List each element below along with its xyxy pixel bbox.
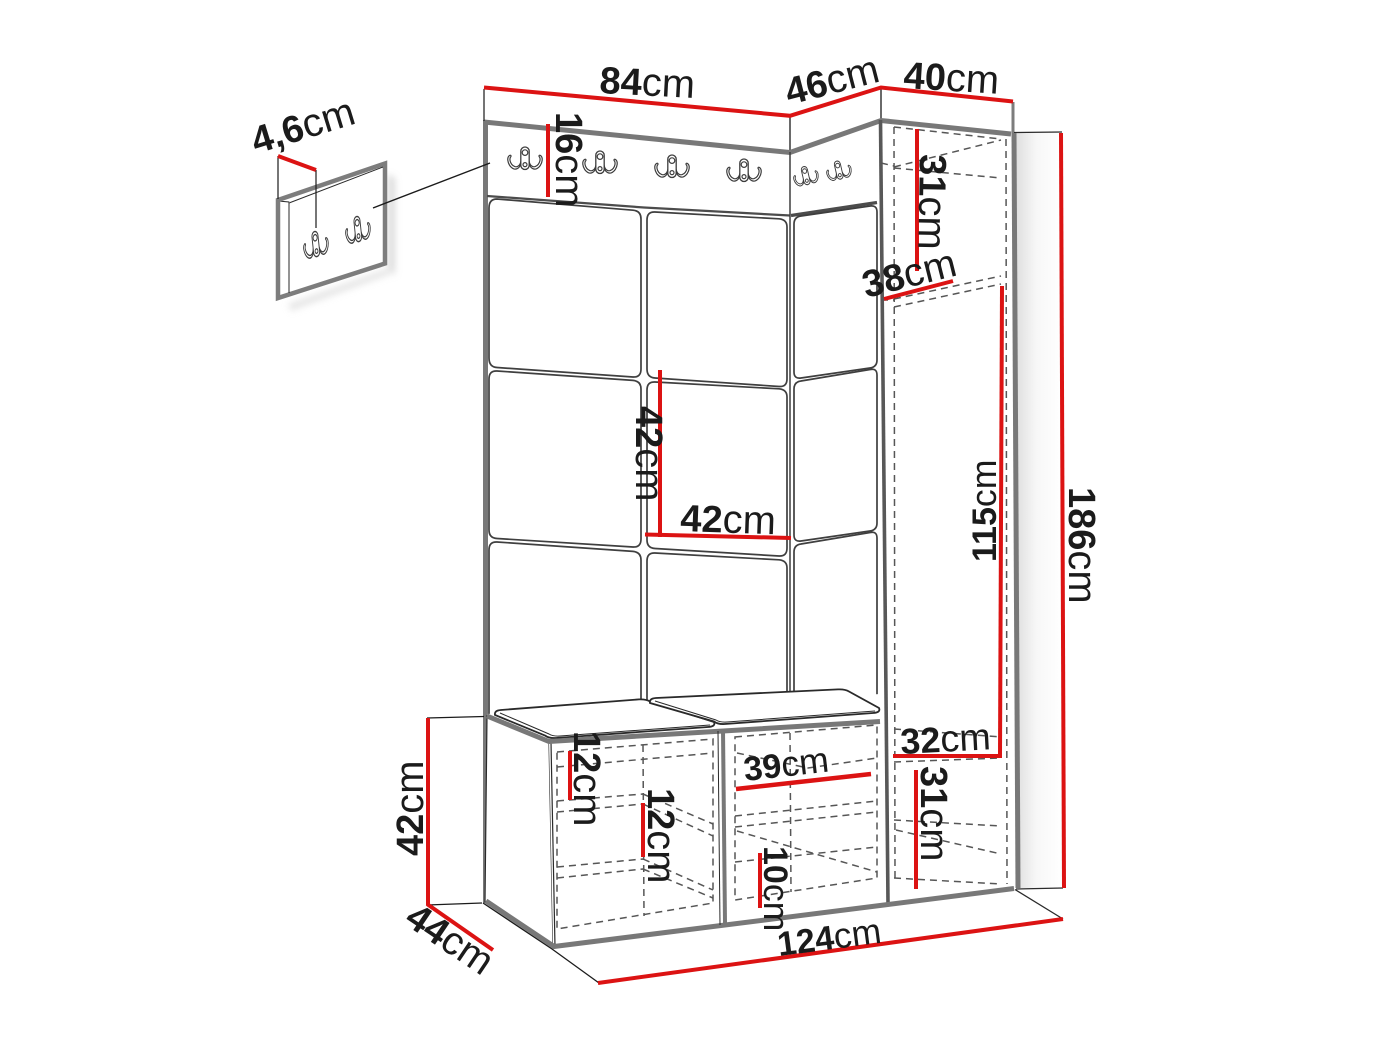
svg-text:84cm: 84cm — [599, 58, 697, 107]
svg-text:42cm: 42cm — [388, 761, 432, 856]
svg-text:12cm: 12cm — [565, 731, 609, 826]
svg-text:31cm: 31cm — [912, 766, 956, 861]
svg-text:12cm: 12cm — [639, 788, 683, 883]
svg-text:32cm: 32cm — [899, 716, 992, 763]
svg-text:31cm: 31cm — [909, 154, 955, 250]
svg-text:186cm: 186cm — [1060, 487, 1104, 604]
svg-text:42cm: 42cm — [627, 406, 671, 501]
svg-text:10cm: 10cm — [756, 846, 796, 931]
svg-text:40cm: 40cm — [902, 53, 1000, 103]
svg-text:42cm: 42cm — [680, 496, 777, 543]
svg-text:115cm: 115cm — [964, 460, 1004, 562]
svg-text:16cm: 16cm — [547, 112, 591, 207]
